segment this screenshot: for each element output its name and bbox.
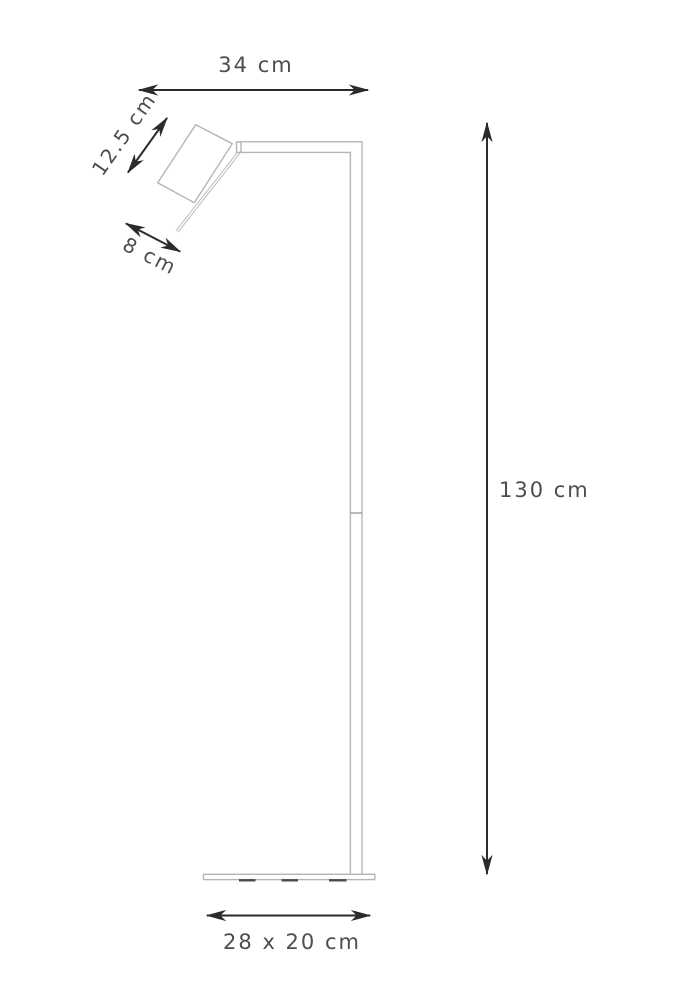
dim-label-base-size: 28 x 20 cm bbox=[186, 932, 398, 953]
lamp-arm-pole-inner-line bbox=[241, 152, 350, 874]
dim-label-arm-width: 34 cm bbox=[140, 55, 372, 76]
lamp-pivot-bracket bbox=[237, 142, 242, 152]
floor-lamp-dimension-diagram: 34 cm 12.5 cm 8 cm 130 cm 28 x 20 cm bbox=[0, 0, 677, 1000]
lamp-arm-pole-outer-line bbox=[239, 142, 362, 875]
dim-label-lamp-height: 130 cm bbox=[499, 480, 590, 501]
lamp-base-plate bbox=[204, 874, 375, 879]
lamp-head-shade bbox=[158, 125, 233, 203]
